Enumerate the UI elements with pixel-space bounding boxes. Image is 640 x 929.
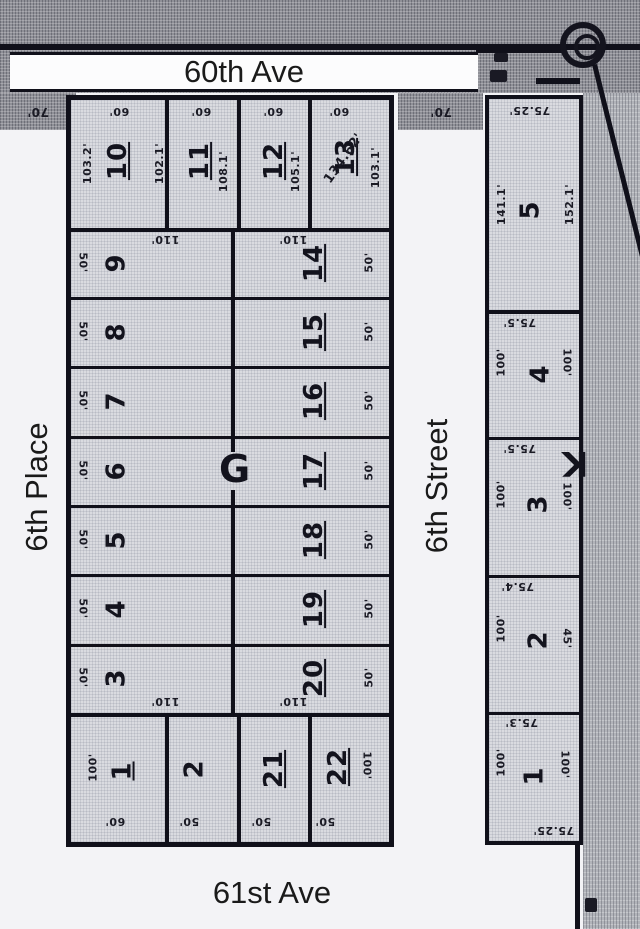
lot-g-12-front: 60' (263, 106, 283, 117)
lot-g-3-front: 50' (78, 667, 89, 687)
street-label-60th-ave: 60th Ave (184, 53, 304, 91)
lot-g-1-number: 1 (110, 761, 136, 780)
boundary-line (237, 100, 241, 228)
lot-g-15-number: 15 (301, 313, 327, 351)
block-g: G 60' 60' 60' 60' 10 11 12 13 103.2' 102… (66, 95, 394, 847)
boundary-line (308, 100, 312, 228)
lot-k-3-number: 3 (526, 494, 552, 513)
lot-g-19-number: 19 (301, 590, 327, 628)
lot-g-11-front: 60' (191, 106, 211, 117)
lot-g-20-depth: 110' (279, 696, 307, 707)
lot-g-5-number: 5 (104, 530, 130, 549)
lot-k-3-east: 100' (562, 482, 573, 510)
lot-g-14-number: 14 (301, 244, 327, 282)
street-label-6th-place: 6th Place (18, 377, 56, 597)
lot-k-4-east: 100' (562, 348, 573, 376)
lot-k-4-number: 4 (528, 364, 554, 383)
lot-g-1-front: 60' (105, 816, 125, 827)
lot-g-3-depth: 110' (151, 696, 179, 707)
lot-k-2-north-dim: 75.4' (501, 581, 534, 592)
lot-g-1-side: 100' (88, 753, 99, 781)
lot-g-6-front: 50' (78, 460, 89, 480)
lot-g-10-front: 60' (109, 106, 129, 117)
lot-k-1-north-dim: 75.3' (505, 717, 538, 728)
plat-map: 60th Ave 70' 70' G 60' 60' 6 (0, 0, 640, 929)
lot-g-20-number: 20 (301, 659, 327, 697)
lot-g-3-number: 3 (104, 668, 130, 687)
lot-k-2-east: 45' (562, 628, 573, 648)
lot-k-3-north-dim: 75.5' (503, 443, 536, 454)
lot-k-1-west: 100' (496, 748, 507, 776)
lot-g-15-front: 50' (364, 321, 375, 341)
lot-g-16-front: 50' (364, 390, 375, 410)
lot-g-16-number: 16 (301, 382, 327, 420)
boundary-line (71, 574, 389, 577)
lot-g-9-number: 9 (104, 253, 130, 272)
dim-70-west: 70' (27, 106, 49, 118)
lot-g-11-depth: 108.1' (218, 151, 229, 192)
lot-g-21-number: 21 (261, 750, 287, 788)
boundary-line (476, 49, 564, 53)
boundary-line (308, 717, 312, 842)
lot-g-11-number: 11 (187, 142, 213, 180)
lot-g-9-depth: 110' (151, 234, 179, 245)
block-k-letter: K (562, 446, 588, 480)
spiral-monument-icon (560, 22, 606, 68)
street-label-61st-ave: 61st Ave (152, 874, 392, 912)
lot-g-17-front: 50' (364, 460, 375, 480)
spiral-inner-icon (574, 34, 600, 60)
lot-g-2-front: 50' (179, 816, 199, 827)
lot-g-18-number: 18 (301, 521, 327, 559)
boundary-line (231, 490, 235, 713)
street-60th-ave: 60th Ave (10, 52, 478, 92)
boundary-line (165, 717, 169, 842)
boundary-line (71, 436, 389, 439)
lot-g-7-number: 7 (104, 391, 130, 410)
lot-g-19-front: 50' (364, 598, 375, 618)
map-mark (490, 70, 507, 82)
lot-k-4-west: 100' (496, 348, 507, 376)
block-g-letter: G (219, 450, 250, 488)
lot-g-22-number: 22 (325, 748, 351, 786)
lot-g-13-east-depth: 103.1' (370, 147, 381, 188)
lot-k-2-west: 100' (496, 614, 507, 642)
lot-k-3-west: 100' (496, 480, 507, 508)
lot-g-9-front: 50' (78, 252, 89, 272)
boundary-line (71, 644, 389, 647)
lot-g-10-number: 10 (105, 142, 131, 180)
boundary-line (71, 505, 389, 508)
lot-g-5-front: 50' (78, 529, 89, 549)
lot-g-10-west-depth: 103.2' (82, 143, 93, 184)
lot-g-14-depth: 110' (279, 234, 307, 245)
lot-g-22-front: 50' (315, 816, 335, 827)
lot-g-4-number: 4 (104, 599, 130, 618)
lot-g-12-number: 12 (261, 142, 287, 180)
boundary-line (536, 78, 580, 84)
row-70-center: 70' (398, 93, 483, 130)
boundary-line (71, 228, 389, 232)
lot-k-4-north-dim: 75.5' (503, 317, 536, 328)
boundary-line (71, 713, 389, 717)
lot-k-5-west: 141.1' (496, 184, 507, 225)
map-mark (494, 53, 508, 62)
block-k-south-dim: 75.25' (533, 825, 574, 836)
boundary-line (71, 366, 389, 369)
lot-g-18-front: 50' (364, 529, 375, 549)
lot-g-2-number: 2 (182, 759, 208, 778)
boundary-line (237, 717, 241, 842)
dim-70-center: 70' (430, 106, 452, 118)
boundary-line (231, 232, 235, 452)
boundary-line (489, 712, 579, 715)
lot-k-5-east: 152.1' (564, 184, 575, 225)
lot-k-1-east: 100' (560, 750, 571, 778)
lot-g-22-side: 100' (362, 751, 373, 779)
lot-g-14-front: 50' (364, 252, 375, 272)
lot-g-21-front: 50' (251, 816, 271, 827)
lot-g-12-depth: 105.1' (290, 151, 301, 192)
street-label-6th-street: 6th Street (418, 376, 456, 596)
row-70-west: 70' (0, 93, 76, 130)
boundary-line (489, 437, 579, 440)
block-k-north-dim: 75.25' (509, 105, 550, 116)
boundary-line (489, 310, 579, 314)
lot-k-5-number: 5 (518, 200, 544, 219)
lot-g-20-front: 50' (364, 667, 375, 687)
lot-g-6-number: 6 (104, 461, 130, 480)
lot-g-8-number: 8 (104, 322, 130, 341)
lot-k-1-number: 1 (522, 766, 548, 785)
lot-g-7-front: 50' (78, 390, 89, 410)
lot-g-4-front: 50' (78, 598, 89, 618)
lot-g-17-number: 17 (301, 452, 327, 490)
boundary-line (489, 575, 579, 578)
lot-g-10-east-depth: 102.1' (154, 143, 165, 184)
lot-g-13-front: 60' (329, 106, 349, 117)
lot-k-2-number: 2 (526, 630, 552, 649)
lot-g-8-front: 50' (78, 321, 89, 341)
boundary-line (575, 841, 580, 929)
boundary-line (71, 297, 389, 300)
map-mark (585, 898, 597, 912)
